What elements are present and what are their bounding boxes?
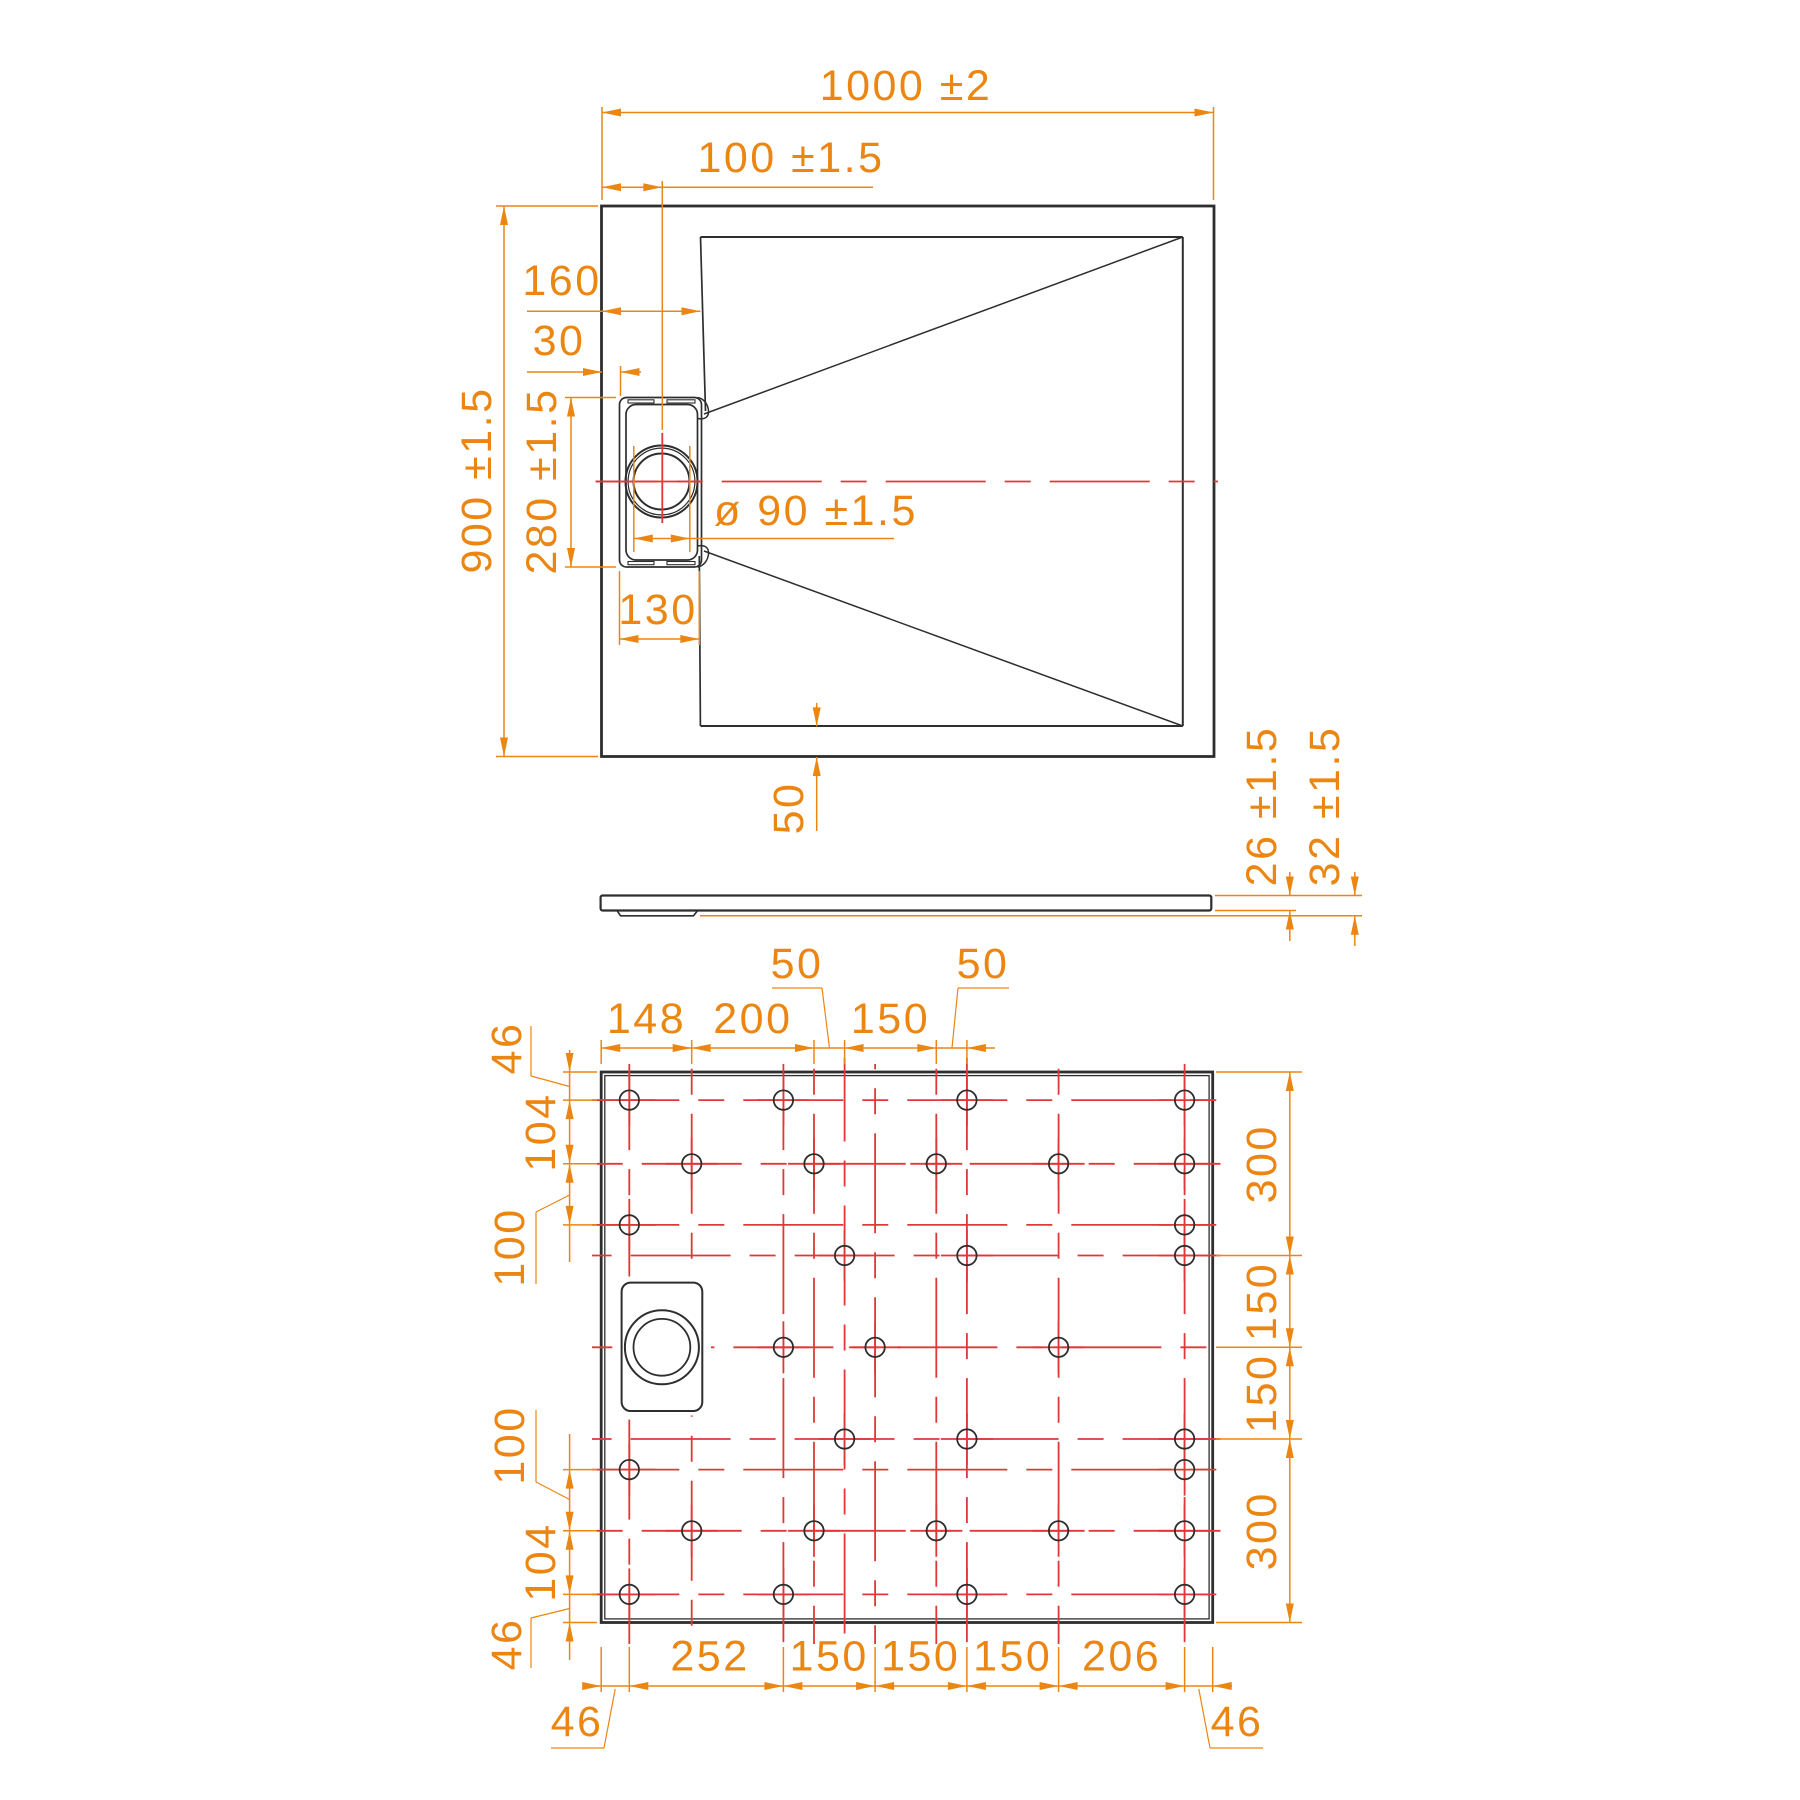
svg-text:150: 150 [1238, 1262, 1286, 1341]
svg-text:200: 200 [713, 995, 792, 1043]
svg-text:150: 150 [851, 995, 930, 1043]
svg-text:50: 50 [765, 782, 813, 835]
svg-text:160: 160 [522, 257, 601, 305]
svg-text:100: 100 [486, 1405, 534, 1484]
svg-text:280 ±1.5: 280 ±1.5 [518, 387, 566, 574]
svg-text:46: 46 [483, 1022, 531, 1075]
svg-text:46: 46 [551, 1698, 604, 1746]
svg-text:900 ±1.5: 900 ±1.5 [453, 386, 501, 573]
svg-text:46: 46 [483, 1618, 531, 1671]
svg-text:46: 46 [1211, 1698, 1264, 1746]
svg-text:300: 300 [1238, 1124, 1286, 1203]
svg-text:104: 104 [517, 1092, 565, 1171]
svg-text:206: 206 [1082, 1633, 1161, 1681]
svg-text:100: 100 [486, 1207, 534, 1286]
svg-text:150: 150 [973, 1633, 1052, 1681]
svg-text:26 ±1.5: 26 ±1.5 [1238, 726, 1286, 887]
svg-text:50: 50 [957, 940, 1010, 988]
svg-text:ø 90 ±1.5: ø 90 ±1.5 [714, 487, 918, 535]
svg-text:130: 130 [618, 586, 697, 634]
svg-text:50: 50 [771, 940, 824, 988]
svg-text:150: 150 [790, 1633, 869, 1681]
svg-text:104: 104 [517, 1522, 565, 1601]
svg-text:100 ±1.5: 100 ±1.5 [697, 134, 884, 182]
svg-text:252: 252 [670, 1633, 749, 1681]
svg-text:1000 ±2: 1000 ±2 [820, 62, 993, 110]
svg-text:150: 150 [881, 1633, 960, 1681]
svg-text:300: 300 [1238, 1491, 1286, 1570]
svg-text:150: 150 [1238, 1354, 1286, 1433]
svg-text:32 ±1.5: 32 ±1.5 [1301, 726, 1349, 887]
svg-text:148: 148 [607, 995, 686, 1043]
svg-text:30: 30 [533, 317, 586, 365]
